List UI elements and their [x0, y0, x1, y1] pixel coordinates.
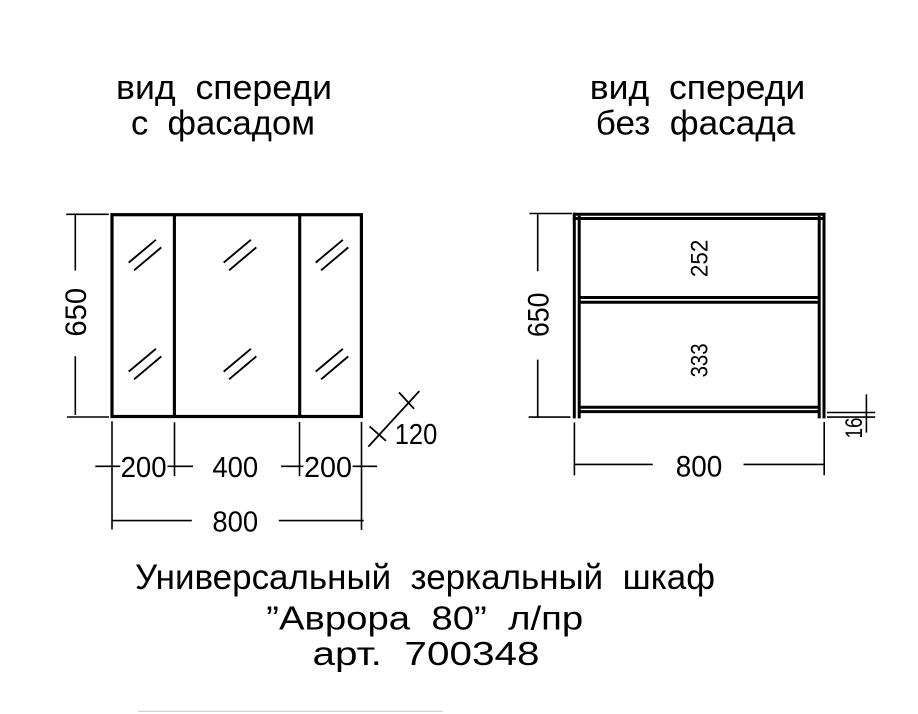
svg-text:650: 650	[523, 293, 556, 338]
svg-text:200: 200	[304, 452, 352, 484]
svg-text:800: 800	[676, 450, 723, 483]
svg-text:Универсальный зеркальный шка: Универсальный зеркальный шкаф	[135, 558, 715, 597]
svg-text:16: 16	[841, 418, 868, 439]
svg-text:без фасада: без фасада	[596, 105, 796, 143]
svg-text:400: 400	[212, 452, 258, 484]
svg-text:200: 200	[121, 452, 167, 484]
svg-text:120: 120	[395, 419, 438, 451]
svg-text:с фасадом: с фасадом	[131, 105, 315, 143]
svg-text:800: 800	[212, 507, 258, 539]
svg-text:вид спереди: вид спереди	[590, 69, 806, 107]
svg-text:650: 650	[60, 288, 93, 337]
svg-text:вид спереди: вид спереди	[116, 69, 332, 107]
svg-text:333: 333	[687, 343, 714, 377]
svg-text:”Аврора 80” л/пр: ”Аврора 80” л/пр	[266, 600, 583, 637]
svg-text:252: 252	[687, 240, 714, 278]
svg-text:арт. 700348: арт. 700348	[313, 635, 540, 672]
